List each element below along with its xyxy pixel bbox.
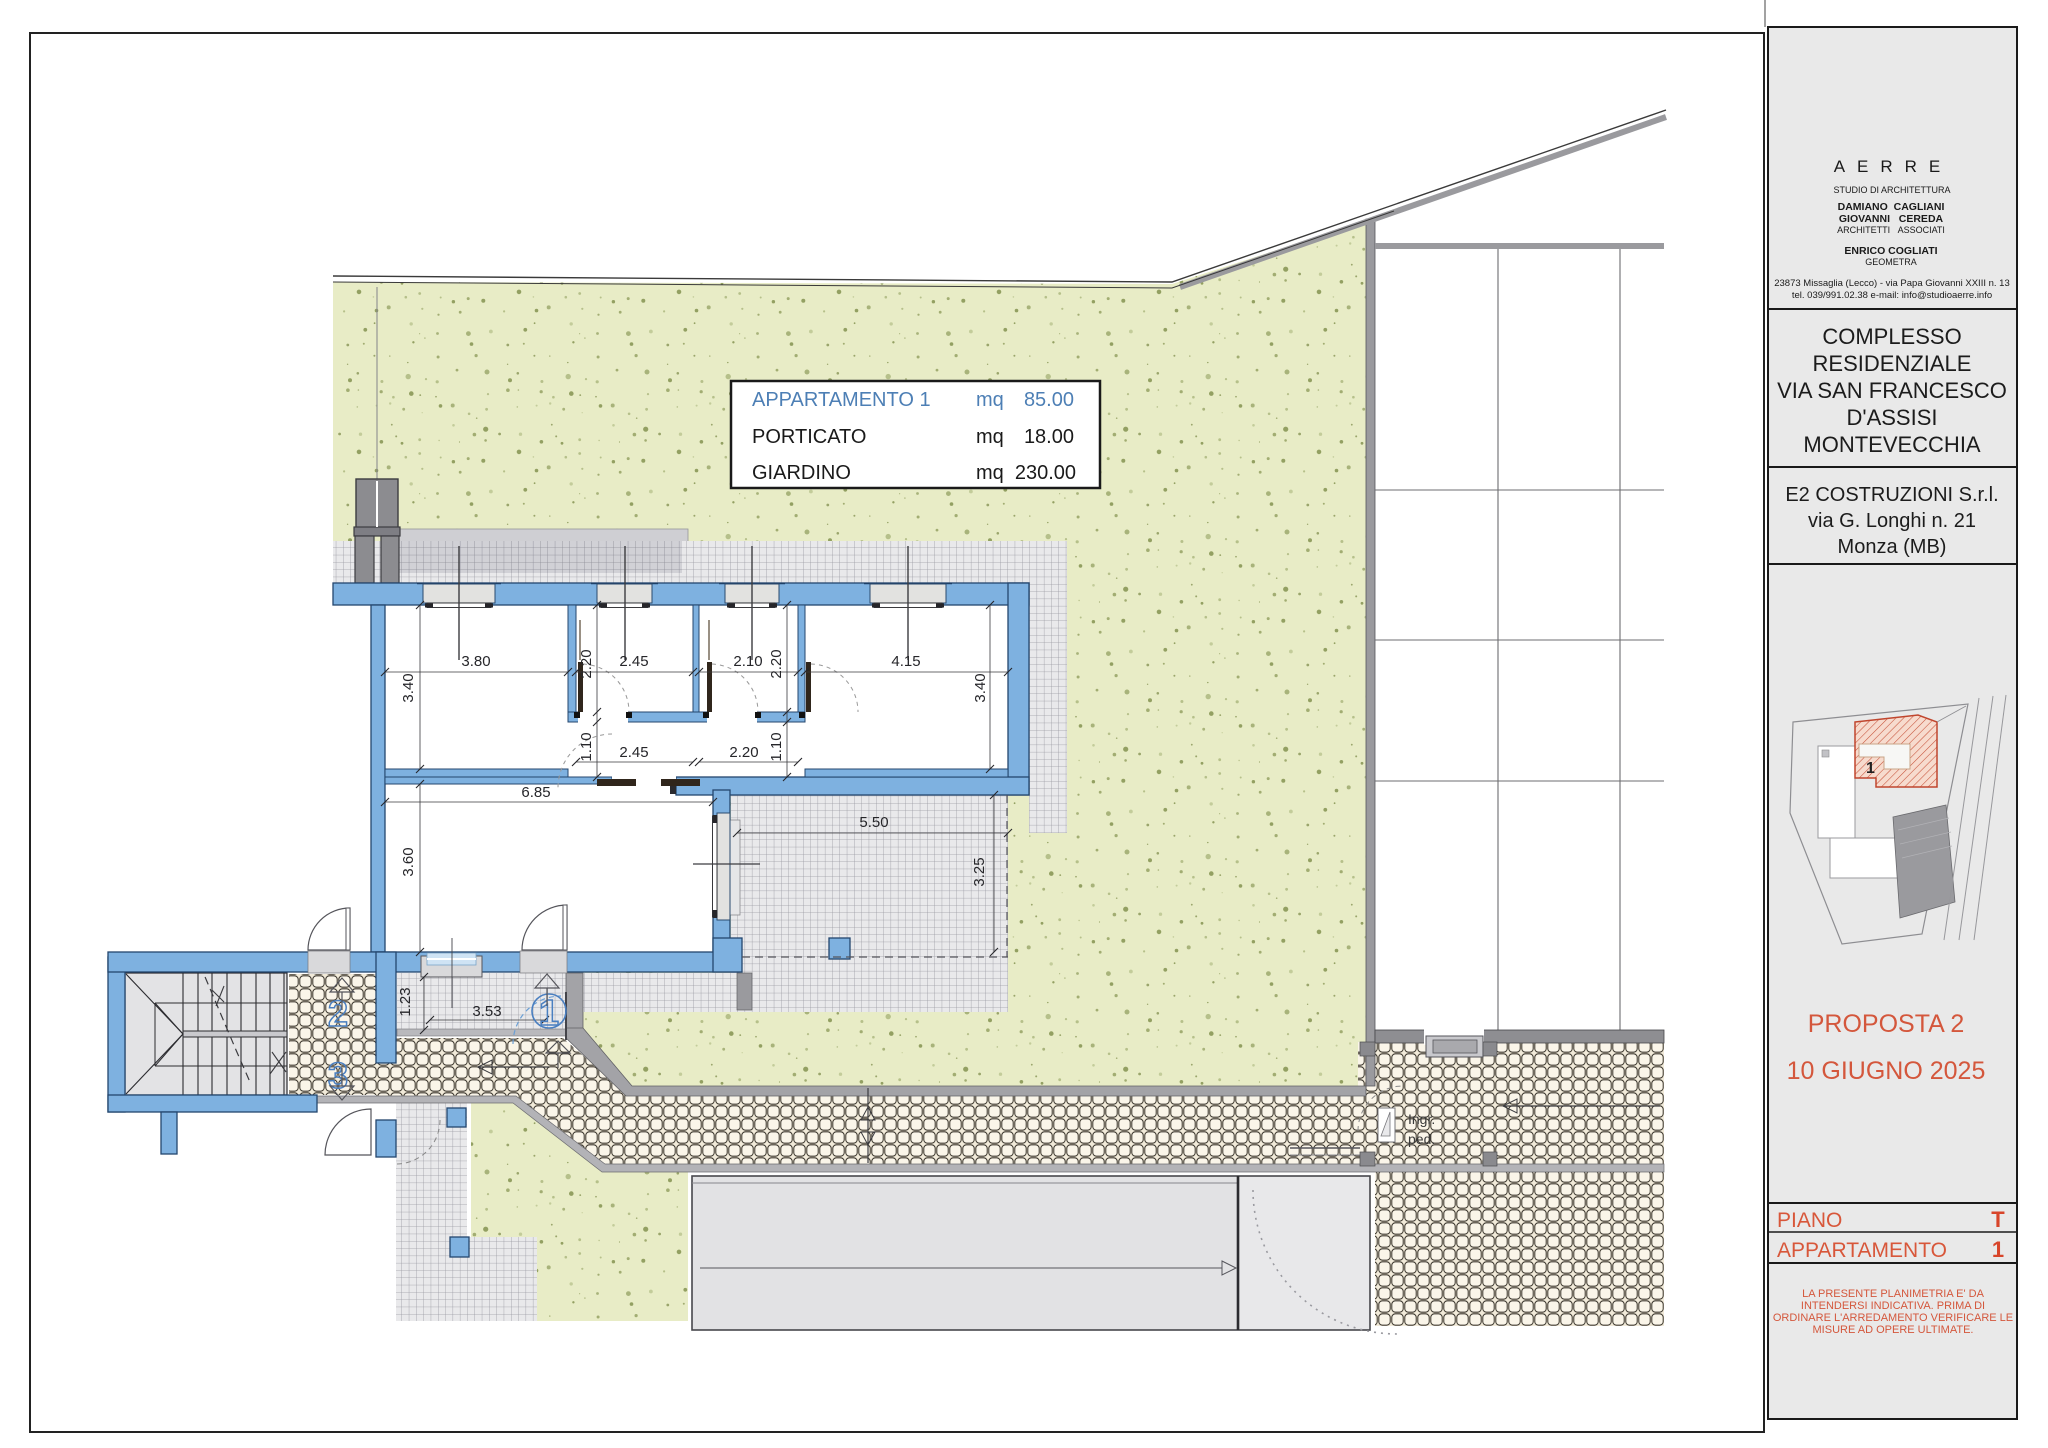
svg-text:Monza (MB): Monza (MB)	[1838, 536, 1947, 558]
svg-text:3.80: 3.80	[461, 653, 490, 670]
svg-text:4.15: 4.15	[891, 653, 920, 670]
svg-text:mq: mq	[976, 389, 1004, 411]
svg-text:mq: mq	[976, 462, 1004, 484]
svg-text:1: 1	[539, 992, 559, 1033]
svg-text:18.00: 18.00	[1024, 426, 1074, 448]
svg-text:tel. 039/991.02.38 e-mail: in: tel. 039/991.02.38 e-mail: info@studioae…	[1792, 290, 1992, 301]
svg-text:2.45: 2.45	[619, 744, 648, 761]
svg-text:230.00: 230.00	[1015, 462, 1076, 484]
svg-text:PROPOSTA 2: PROPOSTA 2	[1808, 1010, 1965, 1038]
svg-text:VIA SAN FRANCESCO: VIA SAN FRANCESCO	[1777, 378, 2007, 403]
svg-text:PORTICATO: PORTICATO	[752, 426, 866, 448]
svg-text:2.20: 2.20	[768, 649, 785, 678]
svg-text:GIOVANNI CEREDA: GIOVANNI CEREDA	[1839, 213, 1944, 225]
svg-text:ped.: ped.	[1408, 1131, 1435, 1147]
svg-text:3.40: 3.40	[400, 673, 417, 702]
svg-text:1.23: 1.23	[397, 987, 414, 1016]
svg-text:5.50: 5.50	[859, 814, 888, 831]
svg-text:GIARDINO: GIARDINO	[752, 462, 851, 484]
svg-text:COMPLESSO: COMPLESSO	[1822, 324, 1961, 349]
svg-text:3.40: 3.40	[972, 673, 989, 702]
svg-text:LA PRESENTE PLANIMETRIA E' DA: LA PRESENTE PLANIMETRIA E' DA	[1802, 1288, 1984, 1300]
svg-text:2.10: 2.10	[733, 653, 762, 670]
svg-text:T: T	[1991, 1207, 2005, 1232]
svg-text:1: 1	[1866, 760, 1875, 777]
svg-text:2.20: 2.20	[578, 649, 595, 678]
svg-text:MISURE AD OPERE ULTIMATE.: MISURE AD OPERE ULTIMATE.	[1813, 1324, 1974, 1336]
svg-text:APPARTAMENTO 1: APPARTAMENTO 1	[752, 389, 931, 411]
svg-text:23873 Missaglia (Lecco) - via: 23873 Missaglia (Lecco) - via Papa Giova…	[1774, 278, 2010, 289]
svg-text:AERRE: AERRE	[1834, 157, 1953, 176]
svg-text:3.53: 3.53	[472, 1003, 501, 1020]
svg-text:MONTEVECCHIA: MONTEVECCHIA	[1803, 432, 1981, 457]
svg-text:PIANO: PIANO	[1777, 1209, 1842, 1232]
svg-text:10 GIUGNO 2025: 10 GIUGNO 2025	[1787, 1057, 1986, 1085]
svg-text:85.00: 85.00	[1024, 389, 1074, 411]
svg-text:RESIDENZIALE: RESIDENZIALE	[1813, 351, 1972, 376]
svg-text:via G. Longhi n. 21: via G. Longhi n. 21	[1808, 510, 1976, 532]
svg-text:ARCHITETTI ASSOCIATI: ARCHITETTI ASSOCIATI	[1837, 225, 1945, 235]
svg-text:E2 COSTRUZIONI S.r.l.: E2 COSTRUZIONI S.r.l.	[1785, 484, 1998, 506]
svg-text:1.10: 1.10	[578, 732, 595, 761]
svg-text:1.10: 1.10	[768, 732, 785, 761]
svg-text:ORDINARE L'ARREDAMENTO VERIFIC: ORDINARE L'ARREDAMENTO VERIFICARE LE	[1773, 1312, 2013, 1324]
svg-text:ENRICO COGLIATI: ENRICO COGLIATI	[1844, 245, 1937, 257]
svg-text:DAMIANO CAGLIANI: DAMIANO CAGLIANI	[1838, 201, 1945, 213]
svg-text:APPARTAMENTO: APPARTAMENTO	[1777, 1239, 1947, 1262]
svg-text:D'ASSISI: D'ASSISI	[1846, 405, 1937, 430]
svg-text:3: 3	[328, 1055, 348, 1096]
svg-text:2.20: 2.20	[729, 744, 758, 761]
svg-text:6.85: 6.85	[521, 784, 550, 801]
svg-text:3.60: 3.60	[400, 847, 417, 876]
svg-text:Ingr.: Ingr.	[1408, 1111, 1435, 1127]
svg-text:1: 1	[1992, 1237, 2004, 1262]
svg-text:3.25: 3.25	[971, 857, 988, 886]
svg-text:INTENDERSI INDICATIVA. PRIMA D: INTENDERSI INDICATIVA. PRIMA DI	[1801, 1300, 1985, 1312]
svg-text:2.45: 2.45	[619, 653, 648, 670]
svg-text:2: 2	[328, 993, 348, 1034]
svg-text:STUDIO DI ARCHITETTURA: STUDIO DI ARCHITETTURA	[1833, 185, 1950, 195]
svg-text:mq: mq	[976, 426, 1004, 448]
svg-text:GEOMETRA: GEOMETRA	[1865, 257, 1917, 267]
